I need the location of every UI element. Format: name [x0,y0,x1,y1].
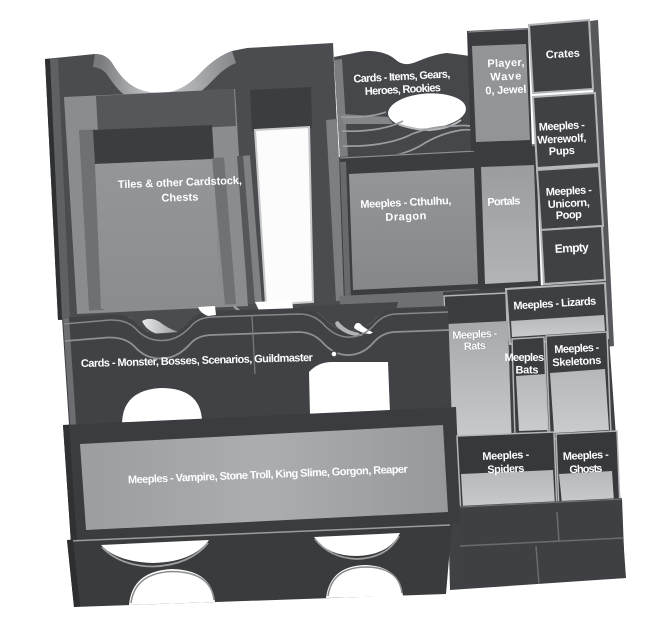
svg-text:Bats: Bats [516,365,539,377]
svg-text:Wave: Wave [490,70,521,83]
svg-text:Dragon: Dragon [385,210,427,224]
svg-text:Empty: Empty [554,240,589,256]
svg-text:Meeples -: Meeples - [554,342,600,356]
svg-text:Meeples -: Meeples - [505,352,550,364]
svg-text:Meeples -: Meeples - [482,449,530,463]
svg-text:Meeples -: Meeples - [539,119,586,133]
svg-text:Skeletons: Skeletons [552,355,602,370]
svg-text:Portals: Portals [487,195,520,208]
svg-text:Crates: Crates [546,48,581,62]
svg-text:0, Jewel: 0, Jewel [485,84,526,98]
svg-text:Ghosts: Ghosts [569,463,602,476]
svg-text:Chests: Chests [161,191,198,204]
svg-text:Meeples -: Meeples - [563,449,610,463]
svg-text:Spiders: Spiders [487,463,524,477]
svg-text:Pups: Pups [549,145,576,158]
svg-text:Rats: Rats [464,340,487,353]
svg-text:Poop: Poop [556,209,583,222]
svg-text:Player,: Player, [487,57,524,71]
